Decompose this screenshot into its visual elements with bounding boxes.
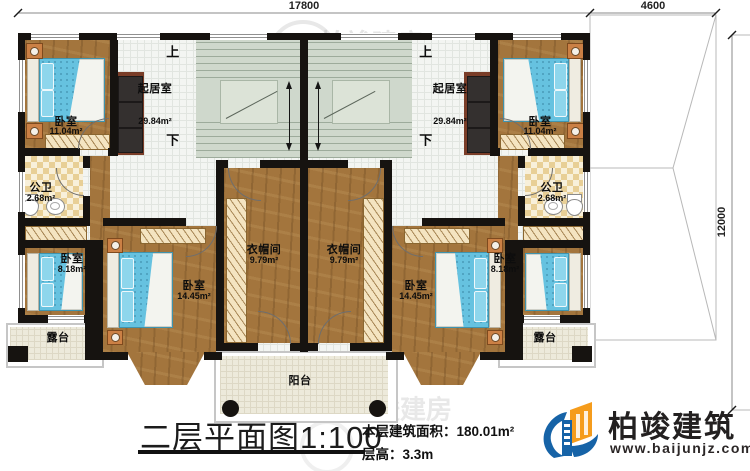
room-area-bedroom8-left: 8.18m²: [58, 264, 87, 274]
window: [583, 60, 590, 112]
window: [18, 255, 25, 308]
terrace-post: [8, 346, 28, 362]
staircase-right: [308, 40, 412, 158]
nightstand: [567, 43, 584, 59]
room-area-bedroom11-right: 11.04m²: [523, 126, 556, 136]
terrace-door: [524, 315, 560, 323]
stat-height-label: 层高：: [362, 447, 403, 462]
room-area-bedroom14-left: 14.45m²: [177, 291, 211, 301]
window: [583, 255, 590, 308]
room-label-living-right: 起居室: [433, 80, 468, 96]
room-area-closet-right: 9.79m²: [330, 255, 359, 265]
dim-wing-width: 4600: [641, 0, 665, 12]
room-area-living-left: 29.84m²: [138, 116, 172, 126]
wardrobe-closet-left: [226, 198, 247, 343]
stair-down-label-left: 下: [166, 130, 180, 149]
window: [18, 60, 25, 112]
room-label-balcony: 阳台: [289, 372, 312, 388]
wardrobe-closet-right: [363, 198, 384, 343]
window: [31, 33, 79, 40]
nightstand: [487, 330, 503, 345]
room-label-terrace-left: 露台: [47, 329, 70, 345]
room-area-bedroom8-right: 8.18m²: [491, 264, 520, 274]
room-label-living-left: 起居室: [138, 80, 173, 96]
room-area-living-right: 29.84m²: [433, 116, 467, 126]
room-label-terrace-right: 露台: [534, 329, 557, 345]
dim-total-width: 17800: [289, 0, 320, 12]
stair-up-label-right: 上: [419, 42, 433, 61]
nightstand: [107, 238, 123, 253]
room-area-bath-left: 2.68m²: [27, 193, 56, 203]
brand-url: www.baijunjz.com: [610, 440, 750, 456]
room-area-closet-left: 9.79m²: [250, 255, 279, 265]
room-area-bedroom11-left: 11.04m²: [49, 126, 82, 136]
nightstand: [26, 43, 43, 59]
window: [583, 172, 590, 212]
dim-wing-height: 12000: [716, 207, 728, 238]
window: [117, 33, 160, 40]
stair-down-label-right: 下: [419, 130, 433, 149]
toilet-right: [566, 194, 582, 216]
room-area-bath-right: 2.68m²: [538, 193, 567, 203]
bed-bedroom14-left: [107, 252, 173, 328]
window: [513, 33, 561, 40]
stat-area-value: 180.01m²: [457, 424, 515, 439]
brand-logo-icon: [540, 400, 602, 466]
title-underline: [138, 450, 364, 454]
bed-bedroom8-right: [525, 253, 581, 311]
stat-height-value: 3.3m: [403, 447, 434, 462]
window: [18, 172, 25, 212]
nightstand: [567, 123, 584, 139]
nightstand: [107, 330, 123, 345]
terrace-door: [48, 315, 84, 323]
window: [341, 33, 398, 40]
window: [210, 33, 267, 40]
floor-plan-page: 柏竣建房 柏竣建房 柏竣建房 17800 4600 12000: [0, 0, 750, 471]
stair-up-label-left: 上: [166, 42, 180, 61]
window: [432, 33, 475, 40]
staircase-left: [196, 40, 300, 158]
nightstand: [26, 123, 43, 139]
terrace-post: [572, 346, 592, 362]
room-area-bedroom14-right: 14.45m²: [399, 291, 433, 301]
stat-area-label: 本层建筑面积：: [362, 424, 457, 439]
